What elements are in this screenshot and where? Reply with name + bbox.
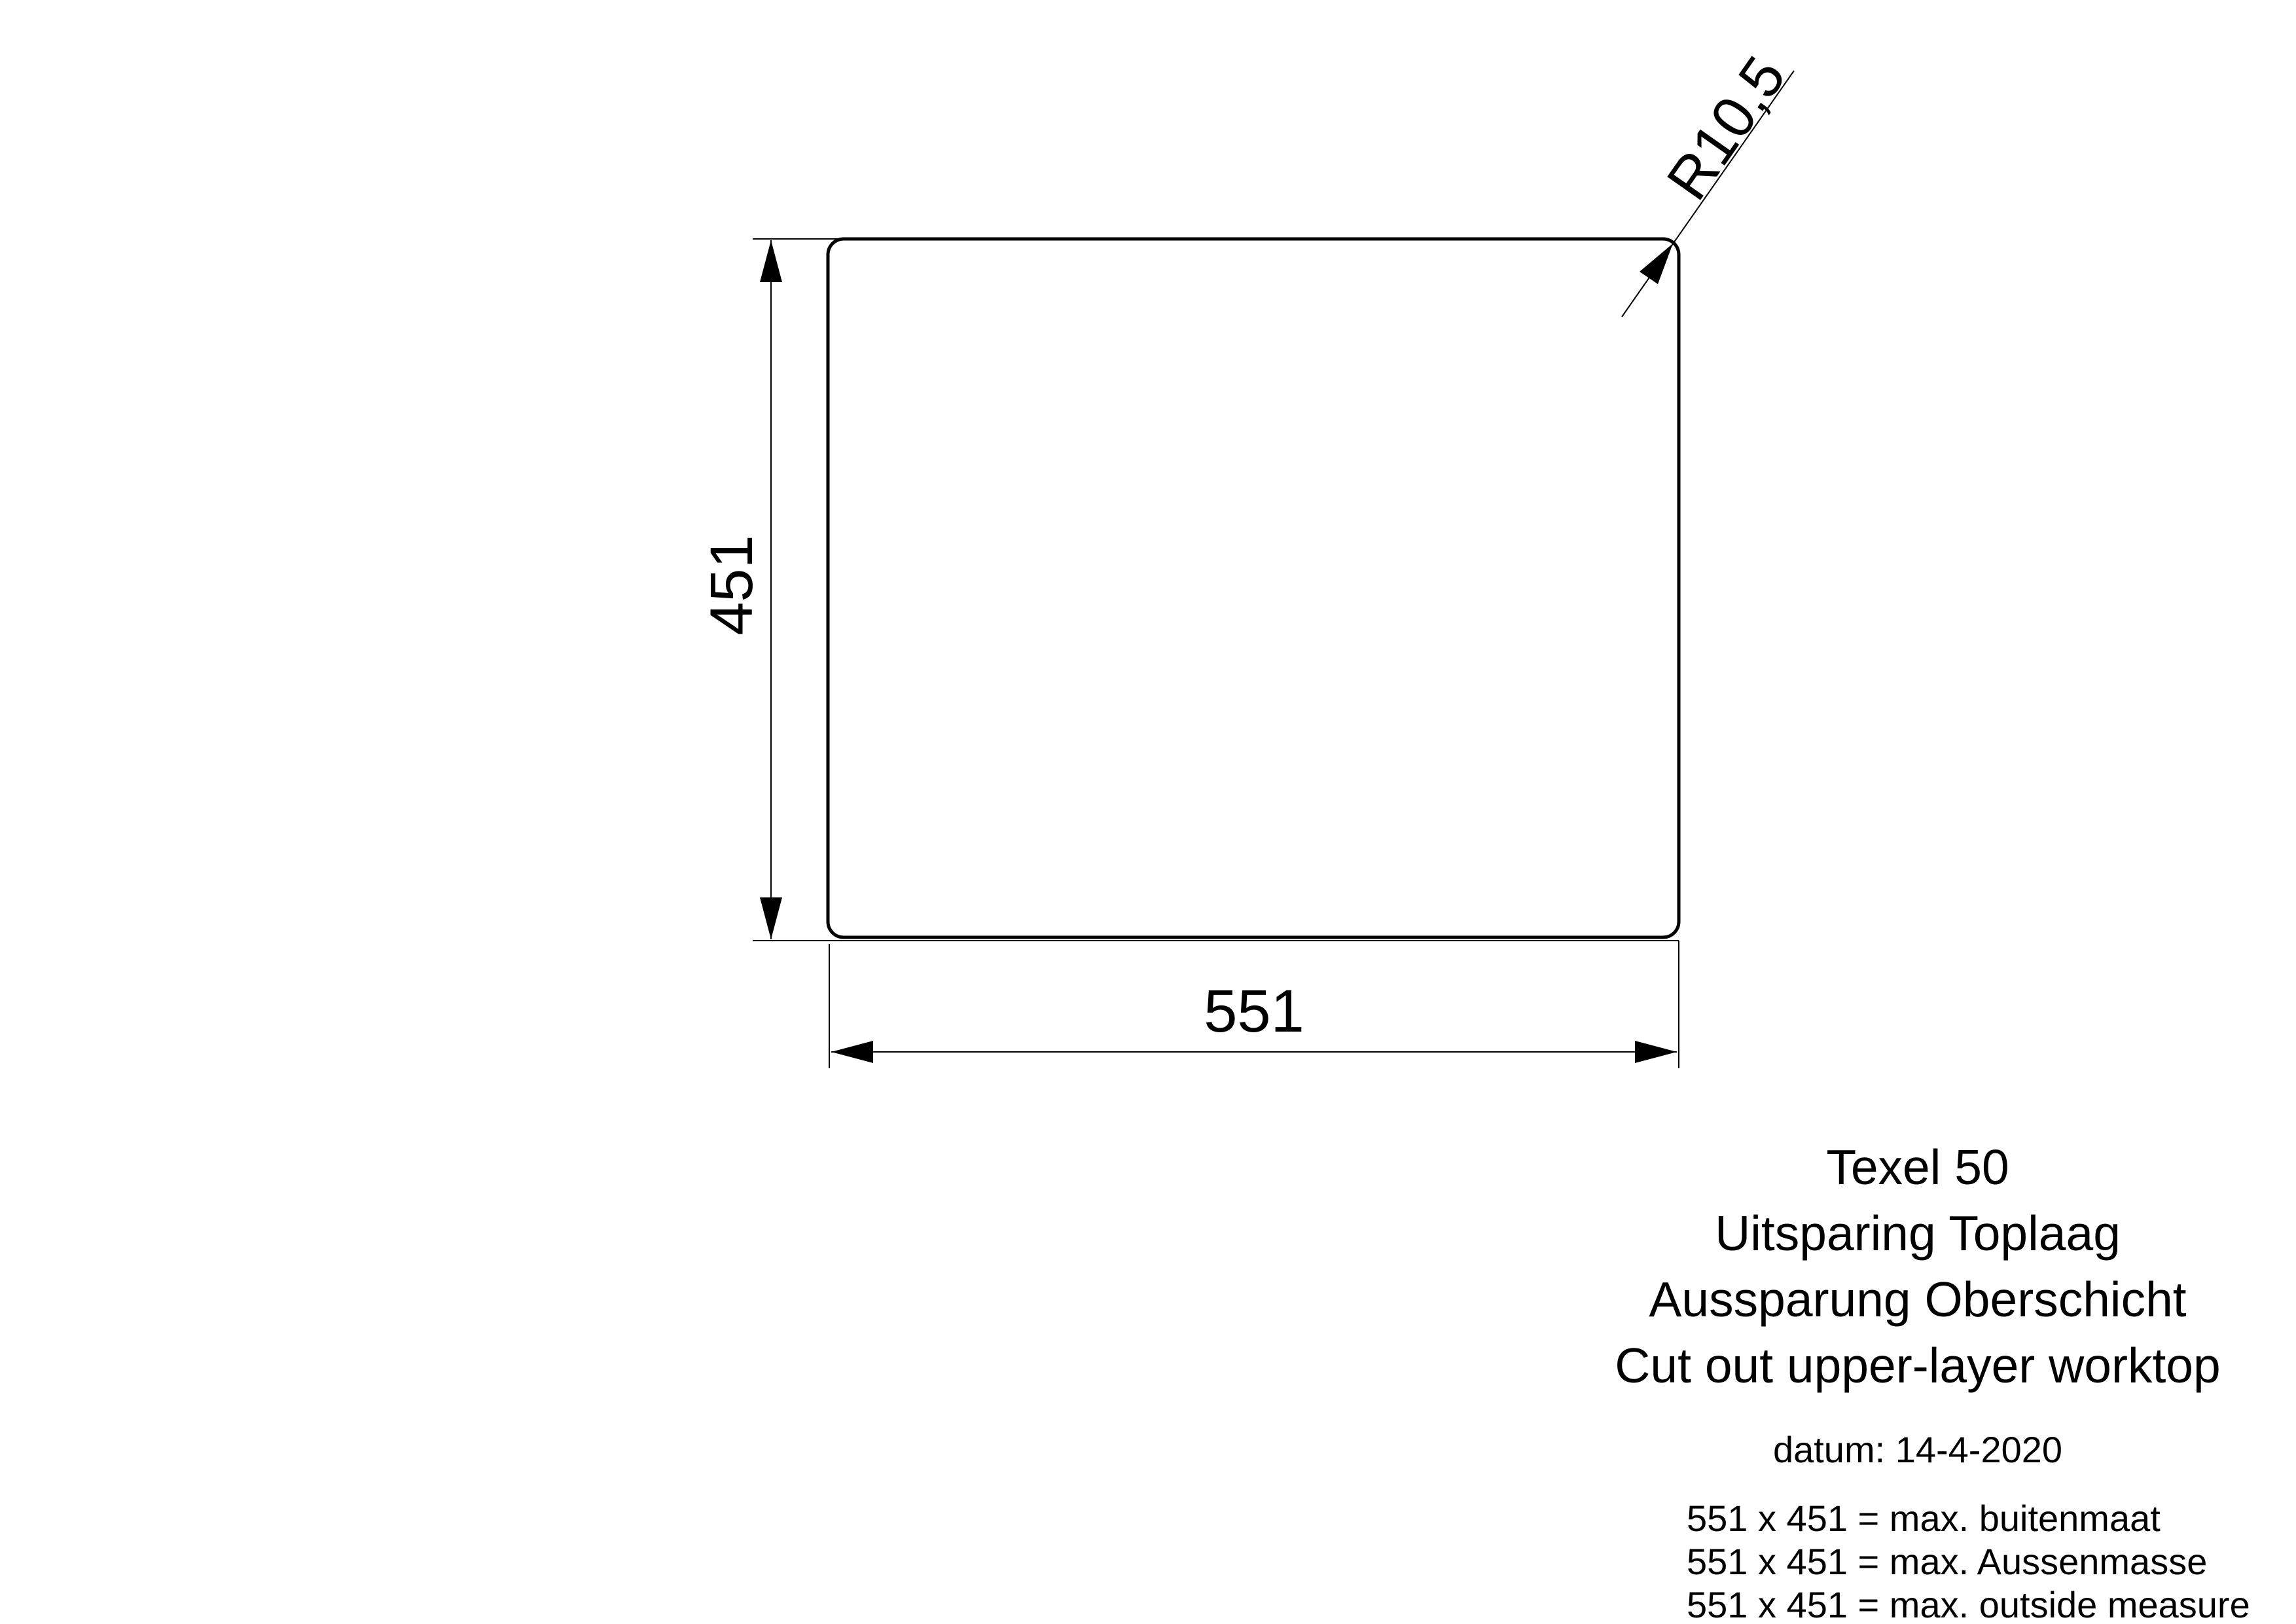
title-block: Texel 50 Uitsparing Toplaag Aussparung O…: [1615, 1134, 2220, 1399]
arrowhead-radius-icon: [1640, 244, 1673, 284]
arrowhead-up-icon: [760, 240, 782, 282]
arrowhead-right-icon: [1635, 1041, 1677, 1063]
height-dimension-label: 451: [702, 535, 762, 636]
arrowhead-left-icon: [831, 1041, 873, 1063]
product-name: Texel 50: [1615, 1134, 2220, 1200]
measure-note-de: 551 x 451 = max. Aussenmasse: [1687, 1540, 2250, 1583]
title-line-nl: Uitsparing Toplaag: [1615, 1200, 2220, 1267]
measure-note-en: 551 x 451 = max. outside measure: [1687, 1583, 2250, 1624]
title-line-en: Cut out upper-layer worktop: [1615, 1333, 2220, 1399]
measure-notes: 551 x 451 = max. buitenmaat 551 x 451 = …: [1687, 1497, 2250, 1624]
arrowhead-down-icon: [760, 897, 782, 939]
cutout-outline-rect: [828, 239, 1679, 937]
technical-drawing-canvas: 451 551 R10,5 Texel 50 Uitsparing Toplaa…: [0, 0, 2296, 1624]
width-dimension-label: 551: [1204, 981, 1304, 1041]
title-line-de: Aussparung Oberschicht: [1615, 1267, 2220, 1333]
date-line: datum: 14-4-2020: [1773, 1428, 2062, 1471]
measure-note-nl: 551 x 451 = max. buitenmaat: [1687, 1497, 2250, 1540]
